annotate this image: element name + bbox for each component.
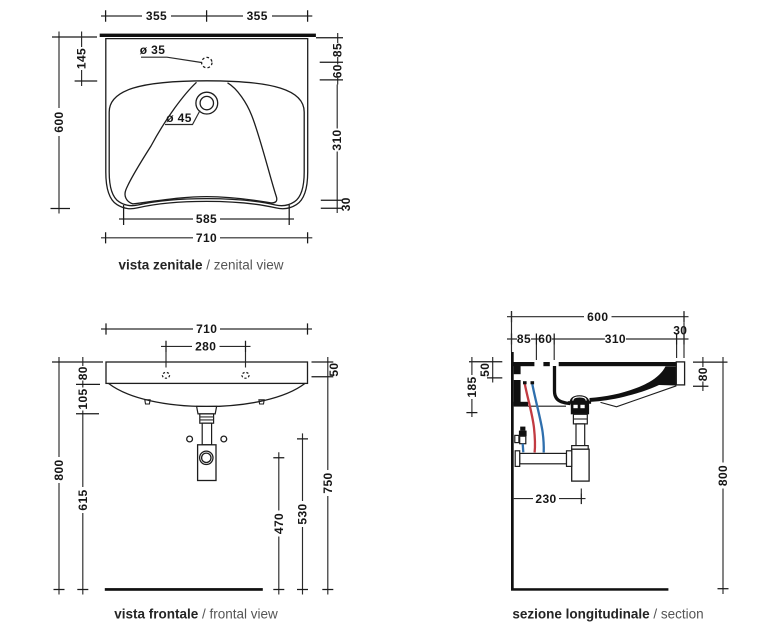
svg-text:60: 60 (538, 332, 552, 346)
svg-text:85: 85 (331, 43, 345, 57)
svg-text:585: 585 (196, 212, 217, 226)
svg-text:85: 85 (517, 332, 531, 346)
svg-text:600: 600 (587, 310, 608, 324)
svg-text:710: 710 (196, 322, 217, 336)
svg-text:60: 60 (331, 64, 345, 78)
svg-text:615: 615 (76, 489, 90, 510)
svg-text:280: 280 (195, 340, 216, 354)
svg-text:800: 800 (52, 459, 66, 480)
svg-text:800: 800 (716, 465, 730, 486)
svg-text:600: 600 (52, 111, 66, 132)
svg-text:ø 45: ø 45 (166, 111, 192, 125)
svg-text:vista zenitale / zenital view: vista zenitale / zenital view (118, 258, 283, 273)
svg-text:310: 310 (330, 129, 344, 150)
svg-text:530: 530 (296, 503, 310, 524)
svg-text:80: 80 (76, 366, 90, 380)
svg-text:sezione longitudinale / sectio: sezione longitudinale / section (512, 607, 703, 622)
svg-text:355: 355 (146, 9, 167, 23)
svg-text:750: 750 (321, 472, 335, 493)
svg-text:710: 710 (196, 231, 217, 245)
svg-text:310: 310 (605, 332, 626, 346)
svg-text:230: 230 (535, 492, 556, 506)
svg-text:50: 50 (478, 363, 492, 377)
svg-text:470: 470 (272, 513, 286, 534)
svg-text:50: 50 (327, 363, 341, 377)
svg-text:30: 30 (339, 197, 353, 211)
svg-text:ø 35: ø 35 (140, 43, 166, 57)
svg-text:145: 145 (75, 48, 89, 69)
svg-text:vista frontale / frontal view: vista frontale / frontal view (114, 607, 278, 622)
svg-text:355: 355 (247, 9, 268, 23)
svg-text:105: 105 (76, 388, 90, 409)
svg-text:80: 80 (696, 367, 710, 381)
svg-text:185: 185 (465, 376, 479, 397)
svg-text:30: 30 (673, 324, 687, 338)
